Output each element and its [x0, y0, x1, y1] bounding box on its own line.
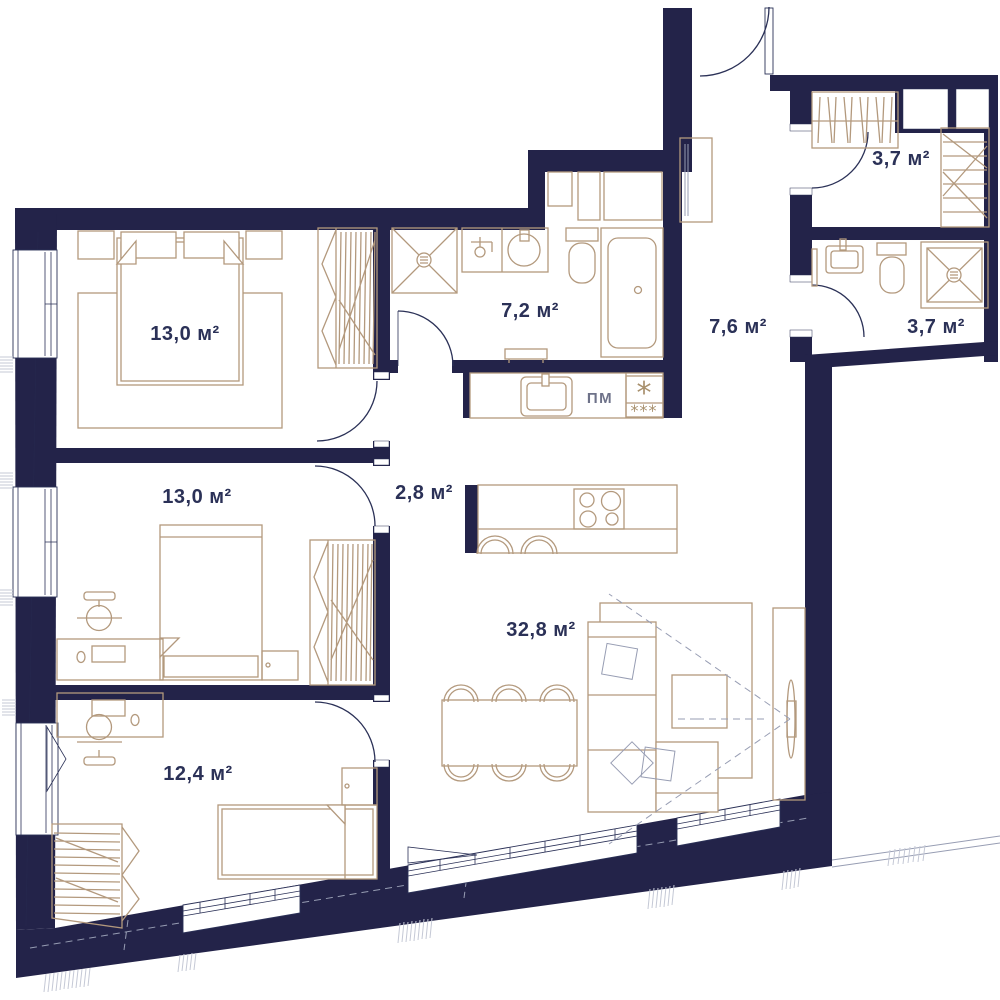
single-bed	[218, 805, 377, 879]
floor-plan-page: 13,0 м² 7,2 м² 7,6 м² 3,7 м² 3,7 м² 13,0…	[0, 0, 1000, 1000]
room-label-living-kitchen: 32,8 м²	[506, 619, 575, 641]
wall-dressing-bath-divider	[790, 227, 998, 240]
floor-plan: 13,0 м² 7,2 м² 7,6 м² 3,7 м² 3,7 м² 13,0…	[0, 0, 1000, 1000]
wall-counter-stub	[463, 373, 470, 418]
room-label-bedroom-bottom: 12,4 м²	[163, 763, 232, 785]
wall-living-right	[805, 355, 832, 800]
wall-hall-right-b	[790, 188, 812, 282]
room-label-bedroom-middle: 13,0 м²	[162, 486, 231, 508]
dishwasher-label: ПМ	[587, 390, 613, 407]
room-label-dressing-room: 3,7 м²	[872, 148, 930, 170]
island-end-cap	[465, 485, 478, 553]
wall-kitchen-right	[663, 150, 682, 418]
window-bedroom-top	[13, 250, 57, 358]
room-label-bathroom-main: 7,2 м²	[501, 300, 559, 322]
room-label-bedroom-top: 13,0 м²	[150, 323, 219, 345]
window-bedroom-middle	[13, 487, 57, 597]
room-label-hallway: 7,6 м²	[709, 316, 767, 338]
double-bed	[117, 232, 243, 385]
tap	[542, 374, 549, 386]
bed	[160, 525, 262, 680]
wall-a1	[373, 230, 390, 380]
freezer-stars-icon: ***	[631, 401, 658, 420]
dining-table	[442, 700, 577, 766]
wall-top-left	[15, 208, 545, 230]
wall-bath-bottom	[452, 360, 663, 373]
room-label-corridor: 2,8 м²	[395, 482, 453, 504]
room-label-bathroom-guest: 3,7 м²	[907, 316, 965, 338]
wall-b	[50, 448, 390, 463]
wall-bath-stub	[388, 360, 398, 373]
